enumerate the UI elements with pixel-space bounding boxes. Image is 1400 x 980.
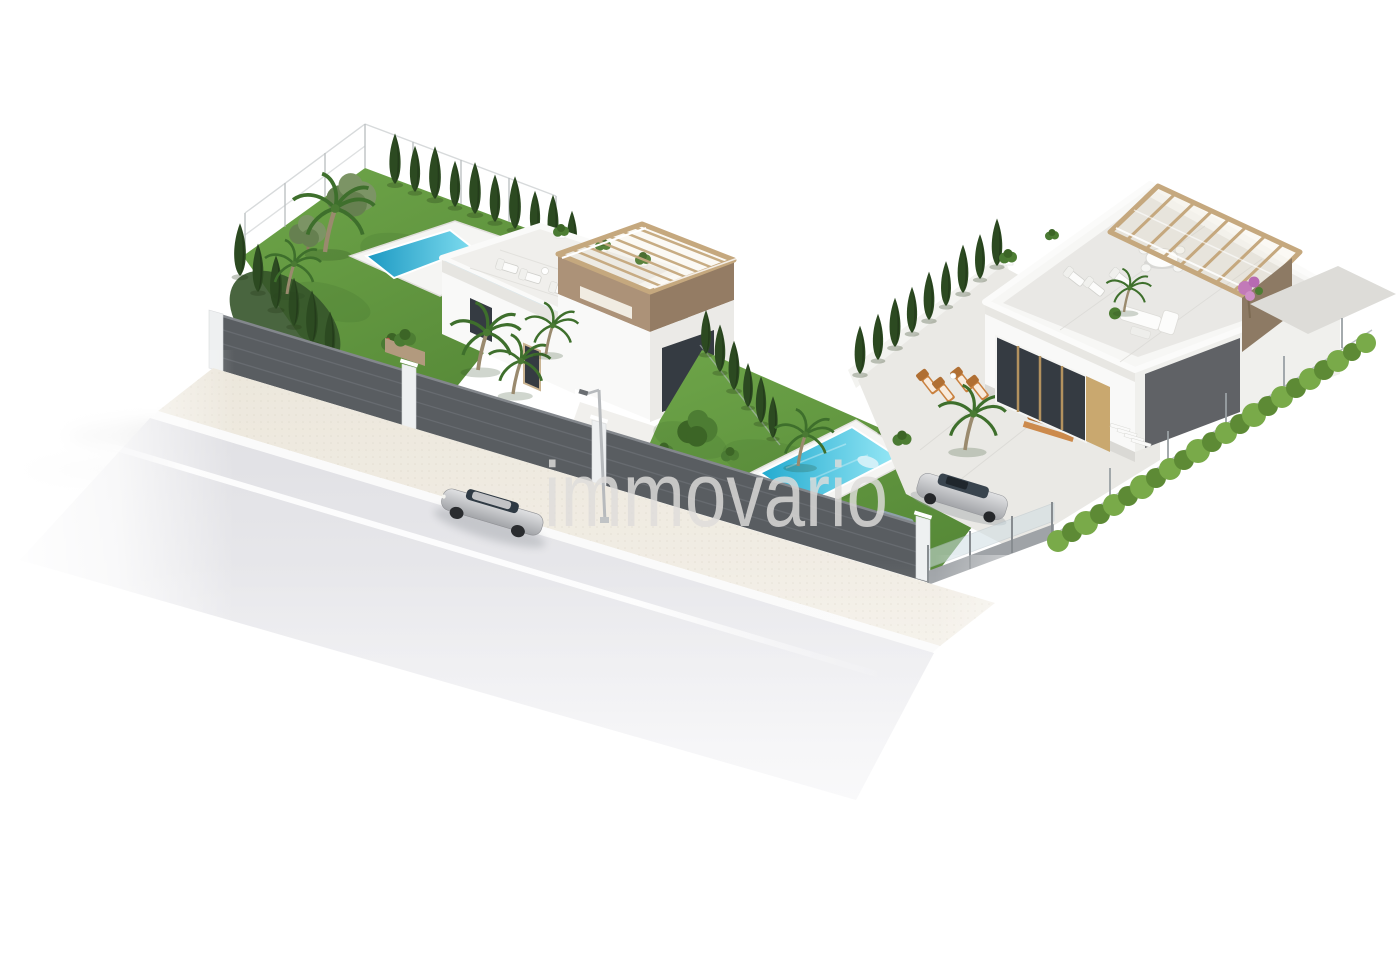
watermark: immovario bbox=[544, 444, 888, 546]
wood-panel bbox=[1086, 376, 1110, 452]
render-scene: immovario bbox=[0, 0, 1400, 980]
render-image: immovario bbox=[0, 0, 1400, 980]
